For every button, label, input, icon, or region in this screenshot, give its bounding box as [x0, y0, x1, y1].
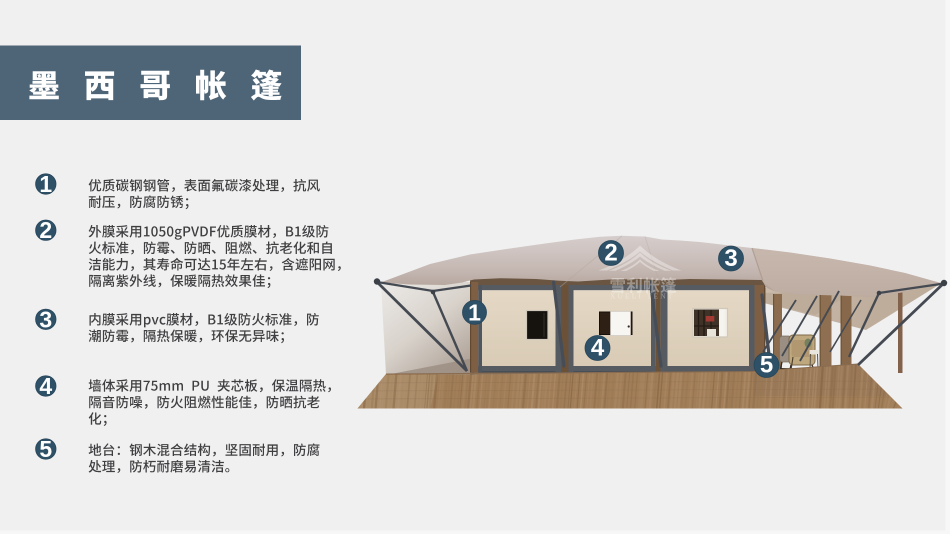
svg-text:1: 1 — [39, 171, 52, 197]
svg-text:3: 3 — [39, 306, 52, 332]
svg-text:3: 3 — [724, 245, 737, 272]
svg-text:1: 1 — [468, 299, 481, 325]
svg-text:XUELI TENT: XUELI TENT — [610, 292, 674, 301]
svg-text:4: 4 — [39, 373, 52, 399]
svg-text:2: 2 — [604, 240, 617, 267]
svg-text:5: 5 — [760, 352, 773, 379]
svg-text:4: 4 — [591, 335, 605, 362]
svg-text:5: 5 — [39, 436, 52, 462]
svg-text:2: 2 — [39, 217, 52, 243]
